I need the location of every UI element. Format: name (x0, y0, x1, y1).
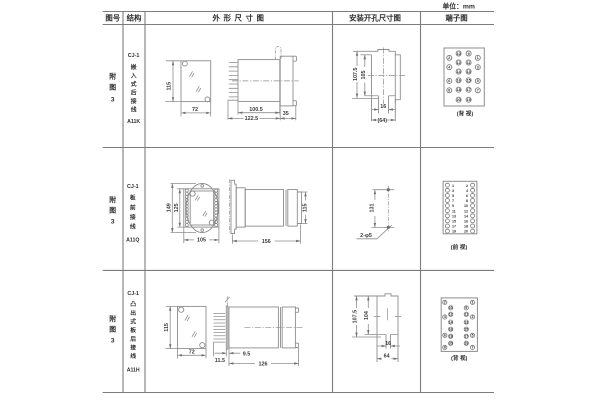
svg-text:后: 后 (130, 335, 136, 343)
svg-text:8: 8 (448, 89, 450, 93)
svg-text:10: 10 (449, 306, 453, 310)
svg-text:6: 6 (466, 194, 468, 198)
svg-text:115: 115 (164, 323, 170, 332)
svg-text:3: 3 (472, 315, 474, 319)
svg-text:17: 17 (464, 335, 468, 339)
svg-text:115: 115 (166, 82, 172, 91)
svg-text:13: 13 (467, 70, 471, 74)
svg-text:11: 11 (452, 209, 456, 213)
svg-text:12: 12 (464, 209, 468, 213)
svg-text:18: 18 (464, 225, 468, 229)
svg-text:入: 入 (131, 72, 137, 79)
svg-text:19: 19 (467, 98, 471, 102)
svg-text:线: 线 (131, 106, 137, 114)
svg-text:16: 16 (464, 220, 468, 224)
svg-text:20: 20 (464, 230, 468, 234)
svg-text:10: 10 (464, 204, 468, 208)
svg-text:4: 4 (448, 66, 450, 70)
svg-text:7: 7 (472, 346, 474, 350)
svg-text:107.5: 107.5 (352, 310, 358, 324)
svg-text:前: 前 (130, 203, 136, 211)
svg-text:105: 105 (197, 238, 206, 244)
svg-text:(64): (64) (378, 118, 388, 124)
svg-text:(前 视): (前 视) (451, 243, 468, 251)
svg-text:10: 10 (457, 52, 461, 56)
svg-text:式: 式 (131, 80, 137, 88)
svg-text:附: 附 (109, 195, 116, 204)
svg-text:后: 后 (131, 89, 137, 97)
svg-text:8: 8 (444, 346, 446, 350)
svg-text:2-φ5: 2-φ5 (360, 233, 372, 239)
svg-text:外形尺寸图: 外形尺寸图 (212, 14, 268, 23)
svg-text:式: 式 (130, 318, 136, 326)
svg-text:115: 115 (303, 203, 309, 212)
svg-text:附: 附 (109, 71, 116, 80)
svg-text:(背 视): (背 视) (451, 354, 468, 362)
svg-text:156: 156 (262, 239, 271, 245)
svg-text:11: 11 (464, 313, 468, 317)
svg-text:15: 15 (464, 327, 468, 331)
svg-text:端子图: 端子图 (445, 14, 467, 23)
svg-text:7: 7 (477, 89, 479, 93)
svg-text:3: 3 (477, 66, 479, 70)
svg-text:6: 6 (444, 334, 446, 338)
svg-text:122.5: 122.5 (245, 116, 259, 122)
svg-text:5: 5 (477, 79, 479, 83)
svg-text:12: 12 (457, 61, 461, 65)
svg-text:2: 2 (444, 301, 446, 305)
svg-text:CJ-1: CJ-1 (128, 53, 140, 59)
svg-text:104: 104 (364, 311, 370, 320)
svg-text:72: 72 (189, 350, 195, 356)
svg-text:(背 视): (背 视) (457, 110, 474, 118)
svg-text:72: 72 (192, 107, 198, 113)
svg-text:126: 126 (259, 361, 268, 367)
svg-text:131: 131 (370, 204, 376, 213)
svg-text:16: 16 (457, 79, 461, 83)
svg-text:2: 2 (448, 56, 450, 60)
svg-text:14: 14 (464, 214, 468, 218)
svg-text:16: 16 (449, 327, 453, 331)
svg-text:9: 9 (465, 306, 467, 310)
svg-text:11: 11 (467, 61, 471, 65)
svg-text:35: 35 (283, 111, 289, 117)
svg-text:13: 13 (452, 214, 456, 218)
svg-text:4: 4 (466, 189, 468, 193)
svg-text:线: 线 (130, 352, 136, 360)
svg-text:接: 接 (130, 213, 136, 221)
svg-text:图号: 图号 (105, 14, 120, 23)
svg-text:线: 线 (130, 223, 136, 231)
svg-text:16: 16 (380, 104, 386, 110)
svg-text:9: 9 (468, 52, 470, 56)
svg-text:14: 14 (449, 320, 453, 324)
svg-text:100.5: 100.5 (249, 107, 263, 113)
svg-text:12: 12 (449, 313, 453, 317)
svg-text:附: 附 (109, 314, 116, 323)
svg-text:2: 2 (466, 184, 468, 188)
svg-text:13: 13 (464, 320, 468, 324)
svg-text:20: 20 (457, 98, 461, 102)
svg-text:CJ-1: CJ-1 (127, 291, 139, 297)
svg-text:125: 125 (174, 203, 180, 212)
svg-text:107.5: 107.5 (353, 68, 359, 82)
svg-text:图: 图 (109, 82, 116, 91)
svg-text:结构: 结构 (126, 14, 142, 23)
svg-text:CJ-1: CJ-1 (127, 184, 139, 190)
svg-text:5: 5 (472, 334, 474, 338)
svg-text:3: 3 (111, 97, 115, 104)
svg-text:A11K: A11K (127, 119, 140, 125)
svg-text:5: 5 (452, 194, 454, 198)
svg-text:9: 9 (452, 204, 454, 208)
svg-text:6: 6 (448, 79, 450, 83)
svg-text:8: 8 (466, 199, 468, 203)
svg-text:17: 17 (452, 225, 456, 229)
svg-text:4: 4 (444, 315, 446, 319)
svg-text:板: 板 (130, 194, 136, 202)
svg-text:安装开孔尺寸图: 安装开孔尺寸图 (349, 14, 401, 23)
svg-text:20: 20 (449, 342, 453, 346)
svg-text:接: 接 (130, 343, 136, 351)
svg-text:嵌: 嵌 (131, 63, 137, 71)
svg-text:64: 64 (384, 353, 390, 359)
svg-text:3: 3 (111, 219, 115, 226)
svg-text:7: 7 (452, 199, 454, 203)
svg-text:19: 19 (464, 342, 468, 346)
svg-text:凸: 凸 (130, 300, 136, 308)
svg-text:1: 1 (472, 301, 474, 305)
svg-text:149: 149 (167, 203, 173, 212)
svg-text:图: 图 (109, 325, 116, 334)
svg-text:A11Q: A11Q (126, 237, 139, 243)
svg-text:15: 15 (452, 220, 456, 224)
svg-text:板: 板 (130, 326, 136, 334)
svg-text:接: 接 (131, 97, 137, 105)
svg-text:9.5: 9.5 (243, 351, 251, 357)
svg-text:1: 1 (477, 56, 479, 60)
svg-text:A11H: A11H (127, 367, 140, 373)
svg-text:19: 19 (452, 230, 456, 234)
svg-text:16: 16 (385, 341, 391, 347)
svg-text:3: 3 (111, 337, 115, 344)
svg-text:105: 105 (361, 71, 367, 80)
svg-text:18: 18 (457, 88, 461, 92)
svg-text:3: 3 (452, 189, 454, 193)
svg-text:单位：mm: 单位：mm (443, 1, 475, 10)
svg-text:14: 14 (457, 70, 461, 74)
svg-text:出: 出 (130, 309, 136, 317)
svg-text:1: 1 (452, 184, 454, 188)
svg-text:图: 图 (109, 205, 116, 214)
svg-text:15: 15 (467, 79, 471, 83)
svg-text:11.5: 11.5 (215, 358, 225, 364)
svg-text:18: 18 (449, 335, 453, 339)
svg-text:17: 17 (467, 88, 471, 92)
